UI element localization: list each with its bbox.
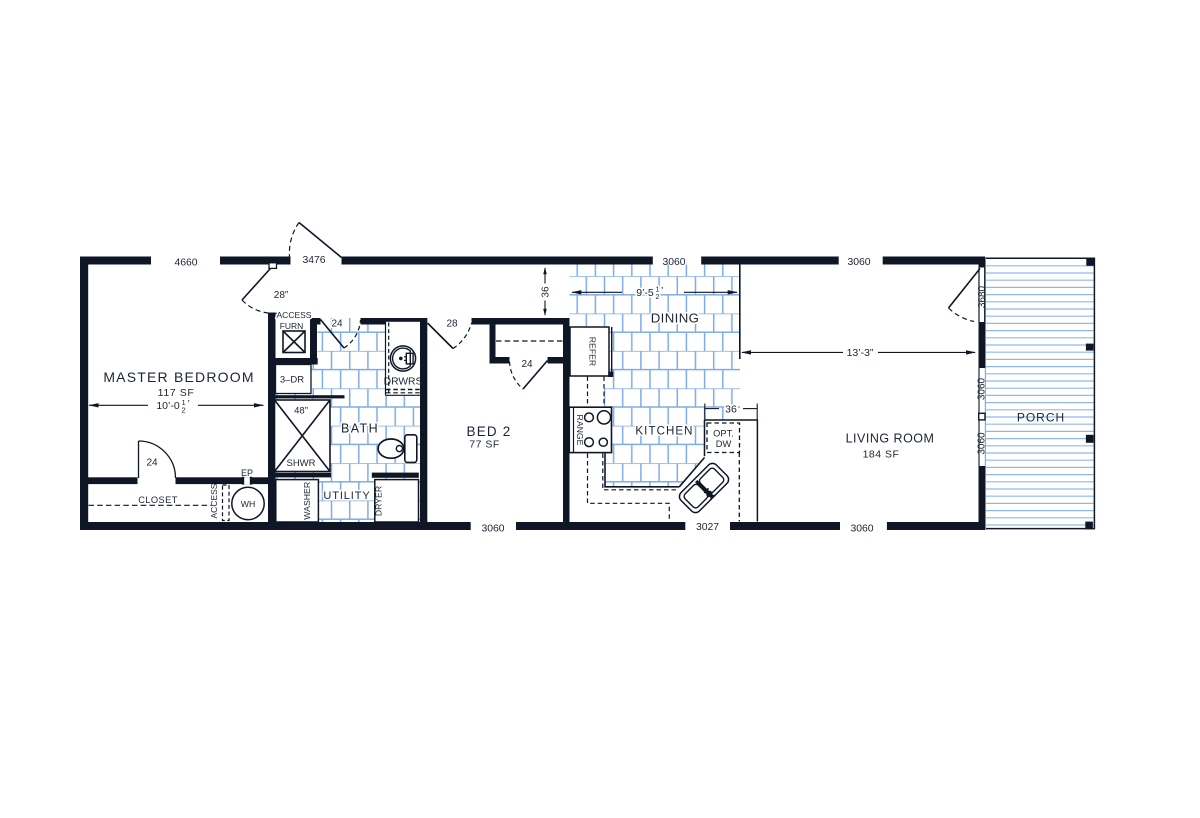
svg-text:28”: 28” bbox=[274, 290, 288, 301]
svg-text:ACCESS: ACCESS bbox=[209, 483, 219, 518]
svg-text:24: 24 bbox=[331, 319, 343, 330]
svg-text:BED 2: BED 2 bbox=[466, 424, 511, 439]
svg-text:’: ’ bbox=[661, 285, 663, 297]
svg-text:3060: 3060 bbox=[977, 377, 988, 400]
svg-text:4660: 4660 bbox=[174, 258, 197, 269]
svg-text:WASHER: WASHER bbox=[302, 482, 312, 520]
svg-text:2: 2 bbox=[182, 405, 186, 414]
svg-text:3–DR: 3–DR bbox=[280, 375, 304, 386]
svg-text:24: 24 bbox=[521, 359, 533, 370]
svg-text:DW: DW bbox=[716, 439, 732, 449]
svg-text:2: 2 bbox=[656, 294, 660, 301]
svg-text:9’-5: 9’-5 bbox=[636, 287, 654, 299]
svg-text:CLOSET: CLOSET bbox=[138, 495, 178, 505]
svg-text:13’-3”: 13’-3” bbox=[847, 347, 874, 359]
svg-text:3060: 3060 bbox=[850, 524, 873, 535]
svg-text:PORCH: PORCH bbox=[1017, 411, 1065, 425]
svg-text:DRYER: DRYER bbox=[374, 486, 384, 516]
svg-text:SHWR: SHWR bbox=[286, 458, 315, 469]
svg-text:3060: 3060 bbox=[847, 257, 870, 268]
svg-text:KITCHEN: KITCHEN bbox=[635, 426, 693, 438]
svg-text:3476: 3476 bbox=[302, 255, 325, 266]
svg-text:28: 28 bbox=[446, 319, 458, 330]
svg-text:EP: EP bbox=[241, 468, 253, 478]
svg-text:3060: 3060 bbox=[662, 257, 685, 268]
svg-text:MASTER BEDROOM: MASTER BEDROOM bbox=[103, 369, 254, 385]
svg-text:36: 36 bbox=[540, 286, 551, 298]
svg-text:3027: 3027 bbox=[696, 522, 719, 533]
svg-text:BATH: BATH bbox=[341, 422, 379, 436]
svg-text:OPT.: OPT. bbox=[713, 429, 734, 439]
svg-text:10’-0: 10’-0 bbox=[156, 400, 180, 412]
svg-text:DINING: DINING bbox=[651, 311, 700, 326]
svg-text:DRWRS: DRWRS bbox=[384, 377, 423, 388]
svg-text:3680: 3680 bbox=[977, 285, 988, 308]
svg-text:48”: 48” bbox=[294, 406, 308, 417]
svg-text:36: 36 bbox=[725, 403, 737, 415]
svg-text:RANGE: RANGE bbox=[575, 415, 585, 446]
svg-text:REFER: REFER bbox=[588, 337, 598, 366]
svg-text:’: ’ bbox=[188, 398, 190, 410]
svg-text:184 SF: 184 SF bbox=[863, 449, 900, 461]
svg-text:24: 24 bbox=[146, 458, 158, 469]
svg-text:LIVING ROOM: LIVING ROOM bbox=[846, 432, 935, 446]
svg-text:WH: WH bbox=[241, 499, 255, 509]
svg-text:UTILITY: UTILITY bbox=[323, 490, 370, 502]
svg-text:77 SF: 77 SF bbox=[469, 439, 500, 451]
svg-text:ACCESS: ACCESS bbox=[277, 310, 312, 320]
svg-text:1: 1 bbox=[656, 287, 660, 294]
svg-text:3060: 3060 bbox=[977, 432, 988, 455]
svg-text:FURN: FURN bbox=[280, 321, 304, 331]
svg-text:3060: 3060 bbox=[481, 524, 504, 535]
